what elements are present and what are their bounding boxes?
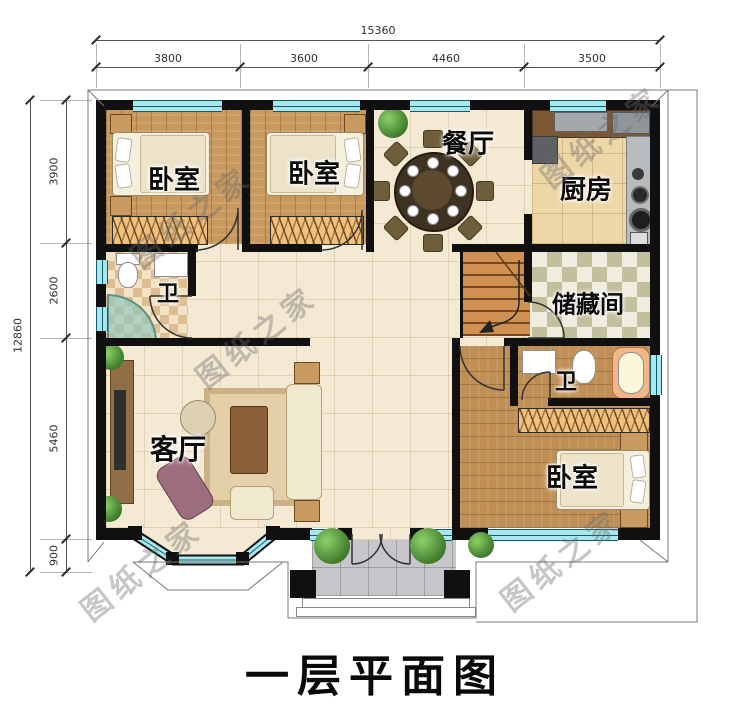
room-label-bath1: 卫 [157,276,179,308]
bed-pillow [629,454,646,479]
dining-chair [423,130,443,148]
wall-bath2-west [510,346,518,406]
armchair [230,486,274,520]
wall-storage-west [524,252,532,302]
dining-chair [476,181,494,201]
nightstand [110,196,132,216]
wall-bedrooms-south-b [242,244,322,252]
floor-plan-sheet: 15360 3800 3600 4460 3500 12860 3900 260… [0,0,750,719]
place-setting [427,213,439,225]
place-setting [407,165,419,177]
bed-pillow [343,137,361,163]
room-label-bedroom2: 卧室 [288,154,340,191]
porch-column [290,570,316,598]
room-label-storage: 储藏间 [552,285,624,320]
stairs-railing [460,252,463,338]
window-dining [410,100,470,112]
window-bedroom1 [133,100,222,112]
dim-left-total: 12860 [12,306,25,366]
bed-pillow [114,163,132,189]
dim-top-seg-2: 3600 [240,52,368,65]
room-label-dining: 餐厅 [442,124,494,161]
nightstand [620,432,648,452]
shrub [468,532,494,558]
nightstand [110,114,132,134]
wall-bottom-bay-right [276,528,312,540]
sofa [286,384,322,500]
dim-left-seg-4: 900 [48,532,61,580]
wall-storage-south-b [504,338,660,346]
wall-bath1-east [188,252,196,296]
wall-dining-kitchen-b [524,214,532,244]
room-label-bath2: 卫 [555,364,577,396]
wall-right [650,100,660,540]
place-setting [455,185,467,197]
toilet-bowl [118,262,138,288]
dim-top-seg-4: 3500 [524,52,660,65]
coffee-table [230,406,268,474]
dim-left-seg-3: 5460 [48,415,61,463]
drawing-title: 一层平面图 [0,640,750,704]
dim-left-seg-1: 3900 [48,148,61,196]
wall-bath2-south [548,398,660,406]
wall-dining-kitchen-a [524,110,532,160]
side-table [294,362,320,384]
dim-top-total: 15360 [96,24,660,37]
place-setting [427,157,439,169]
bay-post [236,552,249,565]
wardrobe [270,216,364,245]
potted-plant [378,108,408,138]
dim-left-seg-2: 2600 [48,267,61,315]
stove-burner [631,186,649,204]
dining-chair [372,181,390,201]
wardrobe [518,408,650,433]
stairs [463,252,530,336]
side-table [294,500,320,522]
place-setting [447,165,459,177]
wall-bottom-living-left [96,528,140,540]
place-setting [399,185,411,197]
room-label-bedroom3: 卧室 [546,458,598,495]
nightstand [344,114,366,134]
window-bath1-upper [96,260,108,284]
window-bath1-lower [96,307,108,331]
entry-threshold-floor [352,528,410,540]
dim-line-top-total [96,40,660,41]
porch-step [296,607,476,617]
window-bedroom2 [273,100,360,112]
tv [114,390,126,470]
dining-chair [423,234,443,252]
stove-burner [632,168,644,180]
dining-table-center [412,170,452,210]
dim-top-seg-3: 4460 [368,52,524,65]
porch-column [444,570,470,598]
window-bath2 [650,355,662,395]
place-setting [447,205,459,217]
bathtub-inner [618,352,644,394]
dim-line-top-segments [96,67,660,68]
bathroom-sink [522,350,556,374]
wall-bed2-dining [366,110,374,252]
dim-top-seg-1: 3800 [96,52,240,65]
shrub [314,528,350,564]
place-setting [407,205,419,217]
wall-kitchen-south [452,244,660,252]
shrub [410,528,446,564]
dim-line-left-total [30,100,31,572]
wall-bedroom3-west [452,346,460,528]
room-label-living: 客厅 [150,428,206,468]
wall-storage-south-a [452,338,460,346]
